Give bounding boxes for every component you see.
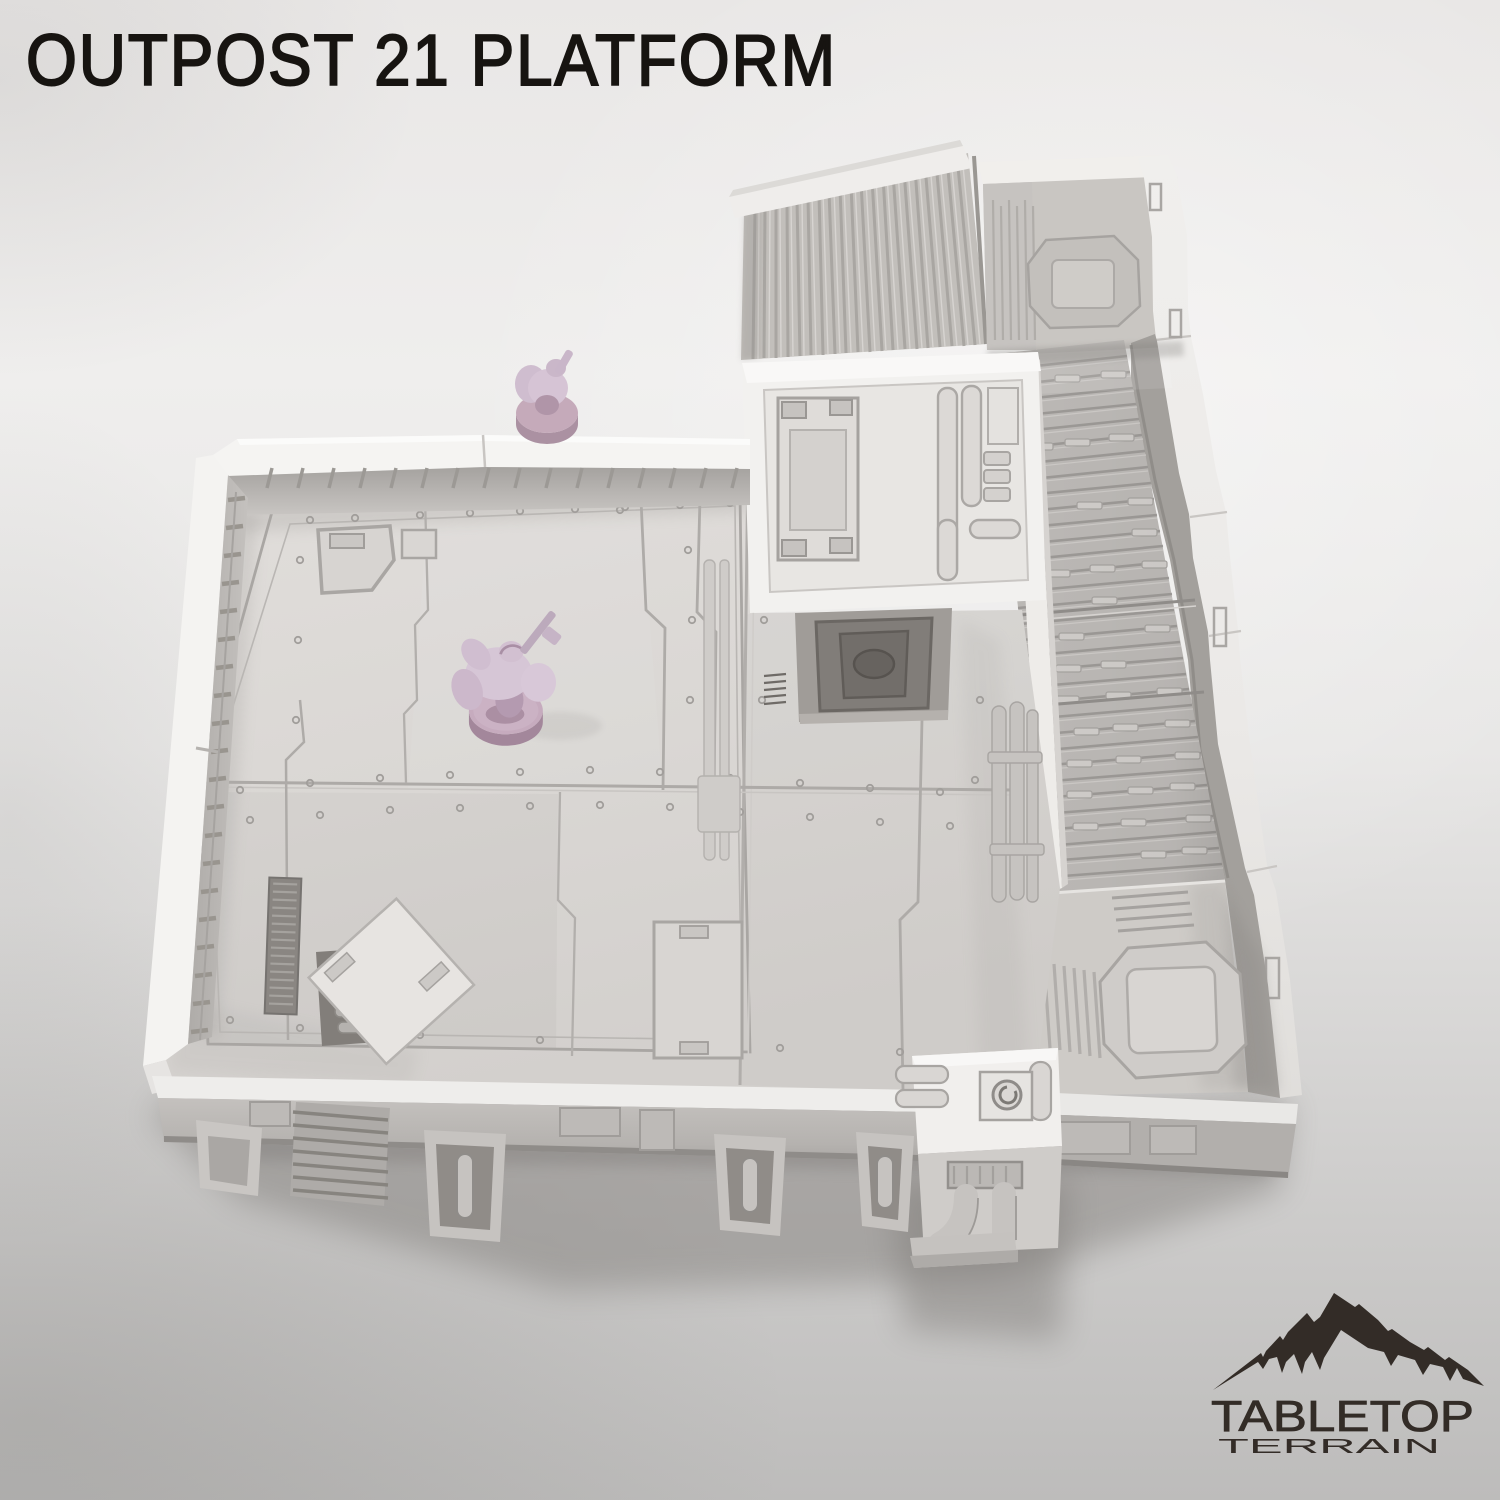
svg-text:TABLETOP: TABLETOP	[1211, 1392, 1474, 1441]
svg-text:TERRAIN: TERRAIN	[1218, 1436, 1440, 1458]
svg-text:OUTPOST 21 PLATFORM: OUTPOST 21 PLATFORM	[26, 21, 837, 101]
